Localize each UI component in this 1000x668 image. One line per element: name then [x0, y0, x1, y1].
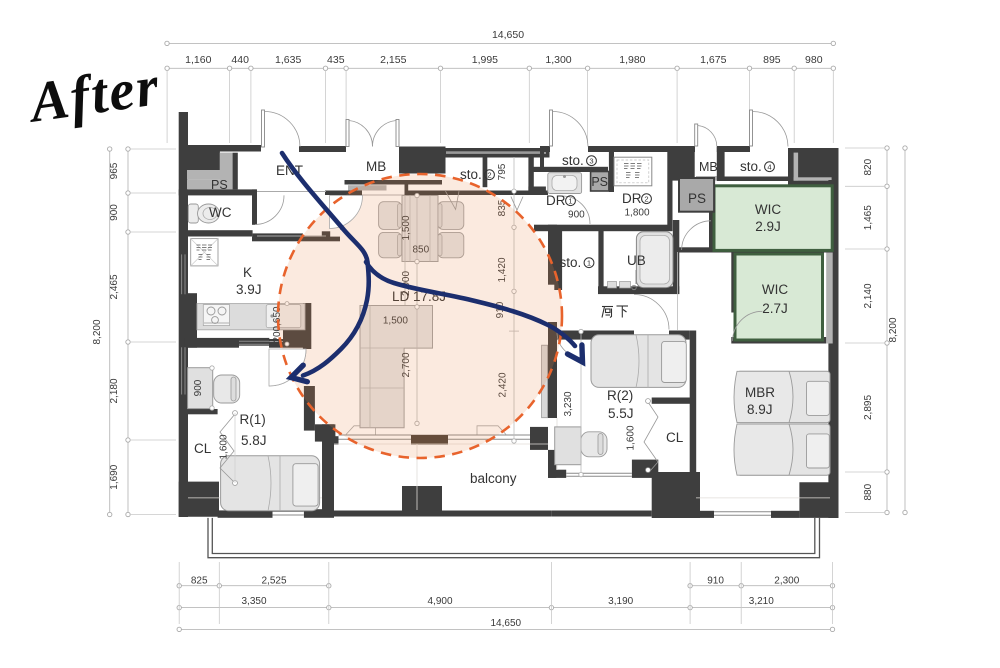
svg-text:WIC: WIC: [755, 202, 781, 217]
svg-text:DR: DR: [622, 191, 642, 206]
svg-text:1,980: 1,980: [619, 54, 645, 66]
svg-text:sto.: sto.: [740, 159, 762, 174]
svg-text:balcony: balcony: [470, 471, 517, 486]
svg-text:8,200: 8,200: [888, 317, 899, 342]
svg-text:1,690: 1,690: [109, 464, 120, 489]
svg-text:1,465: 1,465: [863, 205, 874, 230]
svg-text:3: 3: [589, 156, 593, 165]
svg-text:PS: PS: [688, 191, 706, 206]
svg-text:1,995: 1,995: [472, 54, 498, 66]
svg-text:14,650: 14,650: [491, 618, 522, 629]
svg-text:14,650: 14,650: [492, 29, 524, 41]
svg-text:2,180: 2,180: [109, 378, 120, 403]
svg-text:825: 825: [191, 576, 208, 587]
svg-text:3,350: 3,350: [241, 596, 266, 607]
svg-text:3.9J: 3.9J: [236, 282, 262, 297]
svg-text:2: 2: [487, 170, 491, 179]
svg-text:WIC: WIC: [762, 282, 788, 297]
svg-text:4,900: 4,900: [427, 596, 452, 607]
svg-text:3,210: 3,210: [749, 596, 774, 607]
svg-text:1,635: 1,635: [275, 54, 301, 66]
svg-text:UB: UB: [627, 253, 646, 268]
svg-text:2.9J: 2.9J: [755, 219, 781, 234]
svg-text:DR: DR: [546, 193, 566, 208]
svg-text:2,140: 2,140: [863, 283, 874, 308]
svg-text:2,155: 2,155: [380, 54, 406, 66]
svg-text:3,230: 3,230: [563, 391, 574, 416]
svg-text:1: 1: [587, 258, 591, 267]
svg-text:1: 1: [568, 196, 572, 205]
svg-text:3,190: 3,190: [608, 596, 633, 607]
svg-text:R(1): R(1): [240, 412, 266, 427]
svg-text:1,600: 1,600: [219, 434, 230, 459]
svg-text:900: 900: [109, 204, 120, 221]
svg-text:CL: CL: [194, 441, 212, 456]
svg-text:sto.: sto.: [460, 167, 482, 182]
svg-text:MB: MB: [366, 159, 386, 174]
svg-text:PS: PS: [591, 175, 608, 189]
svg-text:435: 435: [327, 54, 345, 66]
svg-text:MB: MB: [699, 160, 718, 174]
svg-text:880: 880: [863, 483, 874, 500]
svg-text:5.8J: 5.8J: [241, 433, 267, 448]
svg-text:900: 900: [568, 210, 585, 221]
svg-text:4: 4: [767, 162, 771, 171]
svg-text:CL: CL: [666, 430, 684, 445]
svg-text:1,300: 1,300: [545, 54, 571, 66]
svg-text:K: K: [243, 265, 252, 280]
svg-text:2.7J: 2.7J: [762, 301, 788, 316]
svg-text:1,160: 1,160: [185, 54, 211, 66]
svg-text:820: 820: [863, 158, 874, 175]
svg-text:965: 965: [109, 162, 120, 179]
svg-text:1,600: 1,600: [626, 425, 637, 450]
svg-text:MBR: MBR: [745, 385, 775, 400]
svg-text:1,675: 1,675: [700, 54, 726, 66]
svg-text:795: 795: [497, 163, 508, 180]
svg-text:R(2): R(2): [607, 388, 633, 403]
svg-text:8.9J: 8.9J: [747, 402, 773, 417]
svg-text:895: 895: [763, 54, 781, 66]
svg-text:980: 980: [805, 54, 823, 66]
svg-text:910: 910: [707, 576, 724, 587]
svg-text:2,465: 2,465: [109, 274, 120, 299]
svg-text:sto.: sto.: [560, 255, 582, 270]
svg-text:PS: PS: [211, 178, 228, 192]
svg-text:440: 440: [231, 54, 249, 66]
svg-text:2,895: 2,895: [863, 395, 874, 420]
svg-text:2: 2: [644, 194, 648, 203]
svg-text:WC: WC: [209, 205, 232, 220]
svg-text:2,300: 2,300: [774, 576, 799, 587]
svg-text:5.5J: 5.5J: [608, 406, 634, 421]
svg-text:1,800: 1,800: [624, 208, 649, 219]
svg-text:2,525: 2,525: [261, 576, 286, 587]
svg-text:900: 900: [193, 379, 204, 396]
svg-text:sto.: sto.: [562, 153, 584, 168]
svg-text:8,200: 8,200: [92, 319, 103, 344]
